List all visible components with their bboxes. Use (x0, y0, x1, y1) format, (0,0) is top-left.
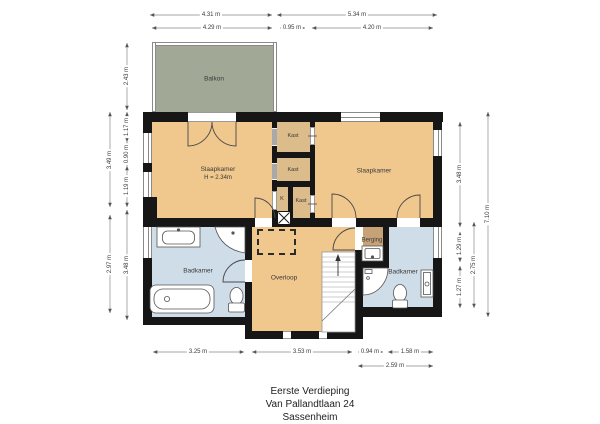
wall-bottom-right (352, 307, 442, 317)
wall-berging-bottom (355, 261, 389, 268)
window-right-2 (433, 227, 442, 258)
label-overloop: Overloop (271, 273, 297, 282)
window-left-2 (143, 172, 152, 197)
plan-title-block: Eerste Verdieping Van Pallandtlaan 24 Sa… (266, 385, 355, 424)
label-berging: Berging (362, 237, 383, 246)
wall-left-2 (143, 163, 152, 172)
label-shaft-k: K (280, 196, 284, 204)
label-badkamer-right: Badkamer (388, 267, 418, 276)
dim-top-inner-1: 4.29 m (201, 25, 223, 31)
label-kast-2: Kast (287, 167, 298, 175)
dim-right-inner-3: 1.27 m (457, 276, 463, 298)
balcony-door-opening (188, 112, 236, 122)
dim-top-outer-1: 4.31 m (200, 12, 222, 18)
dim-left-inner-4: 1.19 m (124, 175, 130, 197)
dim-bottom-inner-1: 3.25 m (187, 349, 209, 355)
dim-right-mid-1: 2.75 m (471, 254, 477, 276)
balcony-wall-top (152, 42, 277, 46)
floor-plan: Balkon Slaapkamer H = 2.34m Kast Kast K … (0, 0, 600, 424)
dim-bottom-inner-2: 3.53 m (291, 349, 313, 355)
window-left-1 (143, 133, 152, 163)
room-name: Slaapkamer (201, 165, 236, 174)
dim-right-outer-1: 7.10 m (485, 203, 491, 225)
label-slaapkamer-left: Slaapkamer H = 2.34m (201, 165, 236, 183)
dim-left-inner-1: 2.43 m (124, 65, 130, 87)
shaft-door (272, 191, 277, 210)
window-right-1 (433, 130, 442, 156)
dim-left-inner-3: 0.90 m (124, 143, 130, 165)
wall-top-2 (236, 112, 341, 122)
label-kast-3: Kast (295, 198, 306, 206)
street-address: Van Pallandtlaan 24 (266, 398, 355, 411)
dim-bottom-inner-3: 0.94 m (359, 349, 381, 355)
wall-bottom-left (143, 317, 252, 325)
dim-right-inner-2: 1.29 m (457, 235, 463, 257)
wall-mid-1 (143, 218, 255, 227)
wall-left-1 (143, 112, 152, 133)
opening-bottom-mid-2 (319, 331, 327, 339)
wall-mid-4 (420, 218, 442, 227)
wall-bottom-mid (245, 331, 360, 339)
kast2-door (272, 163, 277, 180)
room-ceiling-height: H = 2.34m (201, 174, 236, 183)
wall-mid-3 (356, 218, 397, 227)
dim-top-inner-2: 0.95 m (281, 25, 303, 31)
void-dashed-outline (257, 229, 296, 255)
label-kast-1: Kast (287, 133, 298, 141)
label-badkamer-left: Badkamer (183, 266, 213, 275)
window-left-3 (143, 227, 152, 258)
room-badkamer-right-upper (389, 227, 433, 268)
wall-kast-h1 (272, 152, 315, 158)
wall-left-3 (143, 258, 152, 325)
wall-right-1 (433, 112, 442, 130)
balcony-wall-right (273, 42, 277, 112)
city-name: Sassenheim (266, 411, 355, 424)
dim-left-inner-2: 1.17 m (124, 116, 130, 138)
dim-top-inner-3: 4.20 m (361, 25, 383, 31)
balcony-wall-left (152, 42, 156, 112)
wall-kast-h2 (272, 181, 315, 187)
kast3-door-right (310, 195, 315, 213)
ventilation-box (277, 211, 291, 225)
wall-badkamer-overloop-1 (245, 227, 252, 260)
dim-top-outer-2: 5.34 m (346, 12, 368, 18)
dim-left-outer-2: 2.97 m (107, 253, 113, 275)
kast1-door (272, 128, 277, 146)
label-balkon: Balkon (204, 74, 224, 83)
window-top (341, 112, 380, 122)
floor-name: Eerste Verdieping (266, 385, 355, 398)
dim-bottom-inner-4: 1.58 m (399, 349, 421, 355)
label-slaapkamer-right: Slaapkamer (357, 166, 392, 175)
kast1-door-right (310, 127, 315, 145)
opening-bottom-mid-1 (283, 331, 291, 339)
dim-left-inner-5: 3.48 m (124, 254, 130, 276)
wall-right-2 (433, 156, 442, 227)
dim-bottom-outer-1: 2.59 m (384, 363, 406, 369)
dim-right-inner-1: 3.48 m (457, 163, 463, 185)
dim-left-outer-1: 3.49 m (107, 149, 113, 171)
